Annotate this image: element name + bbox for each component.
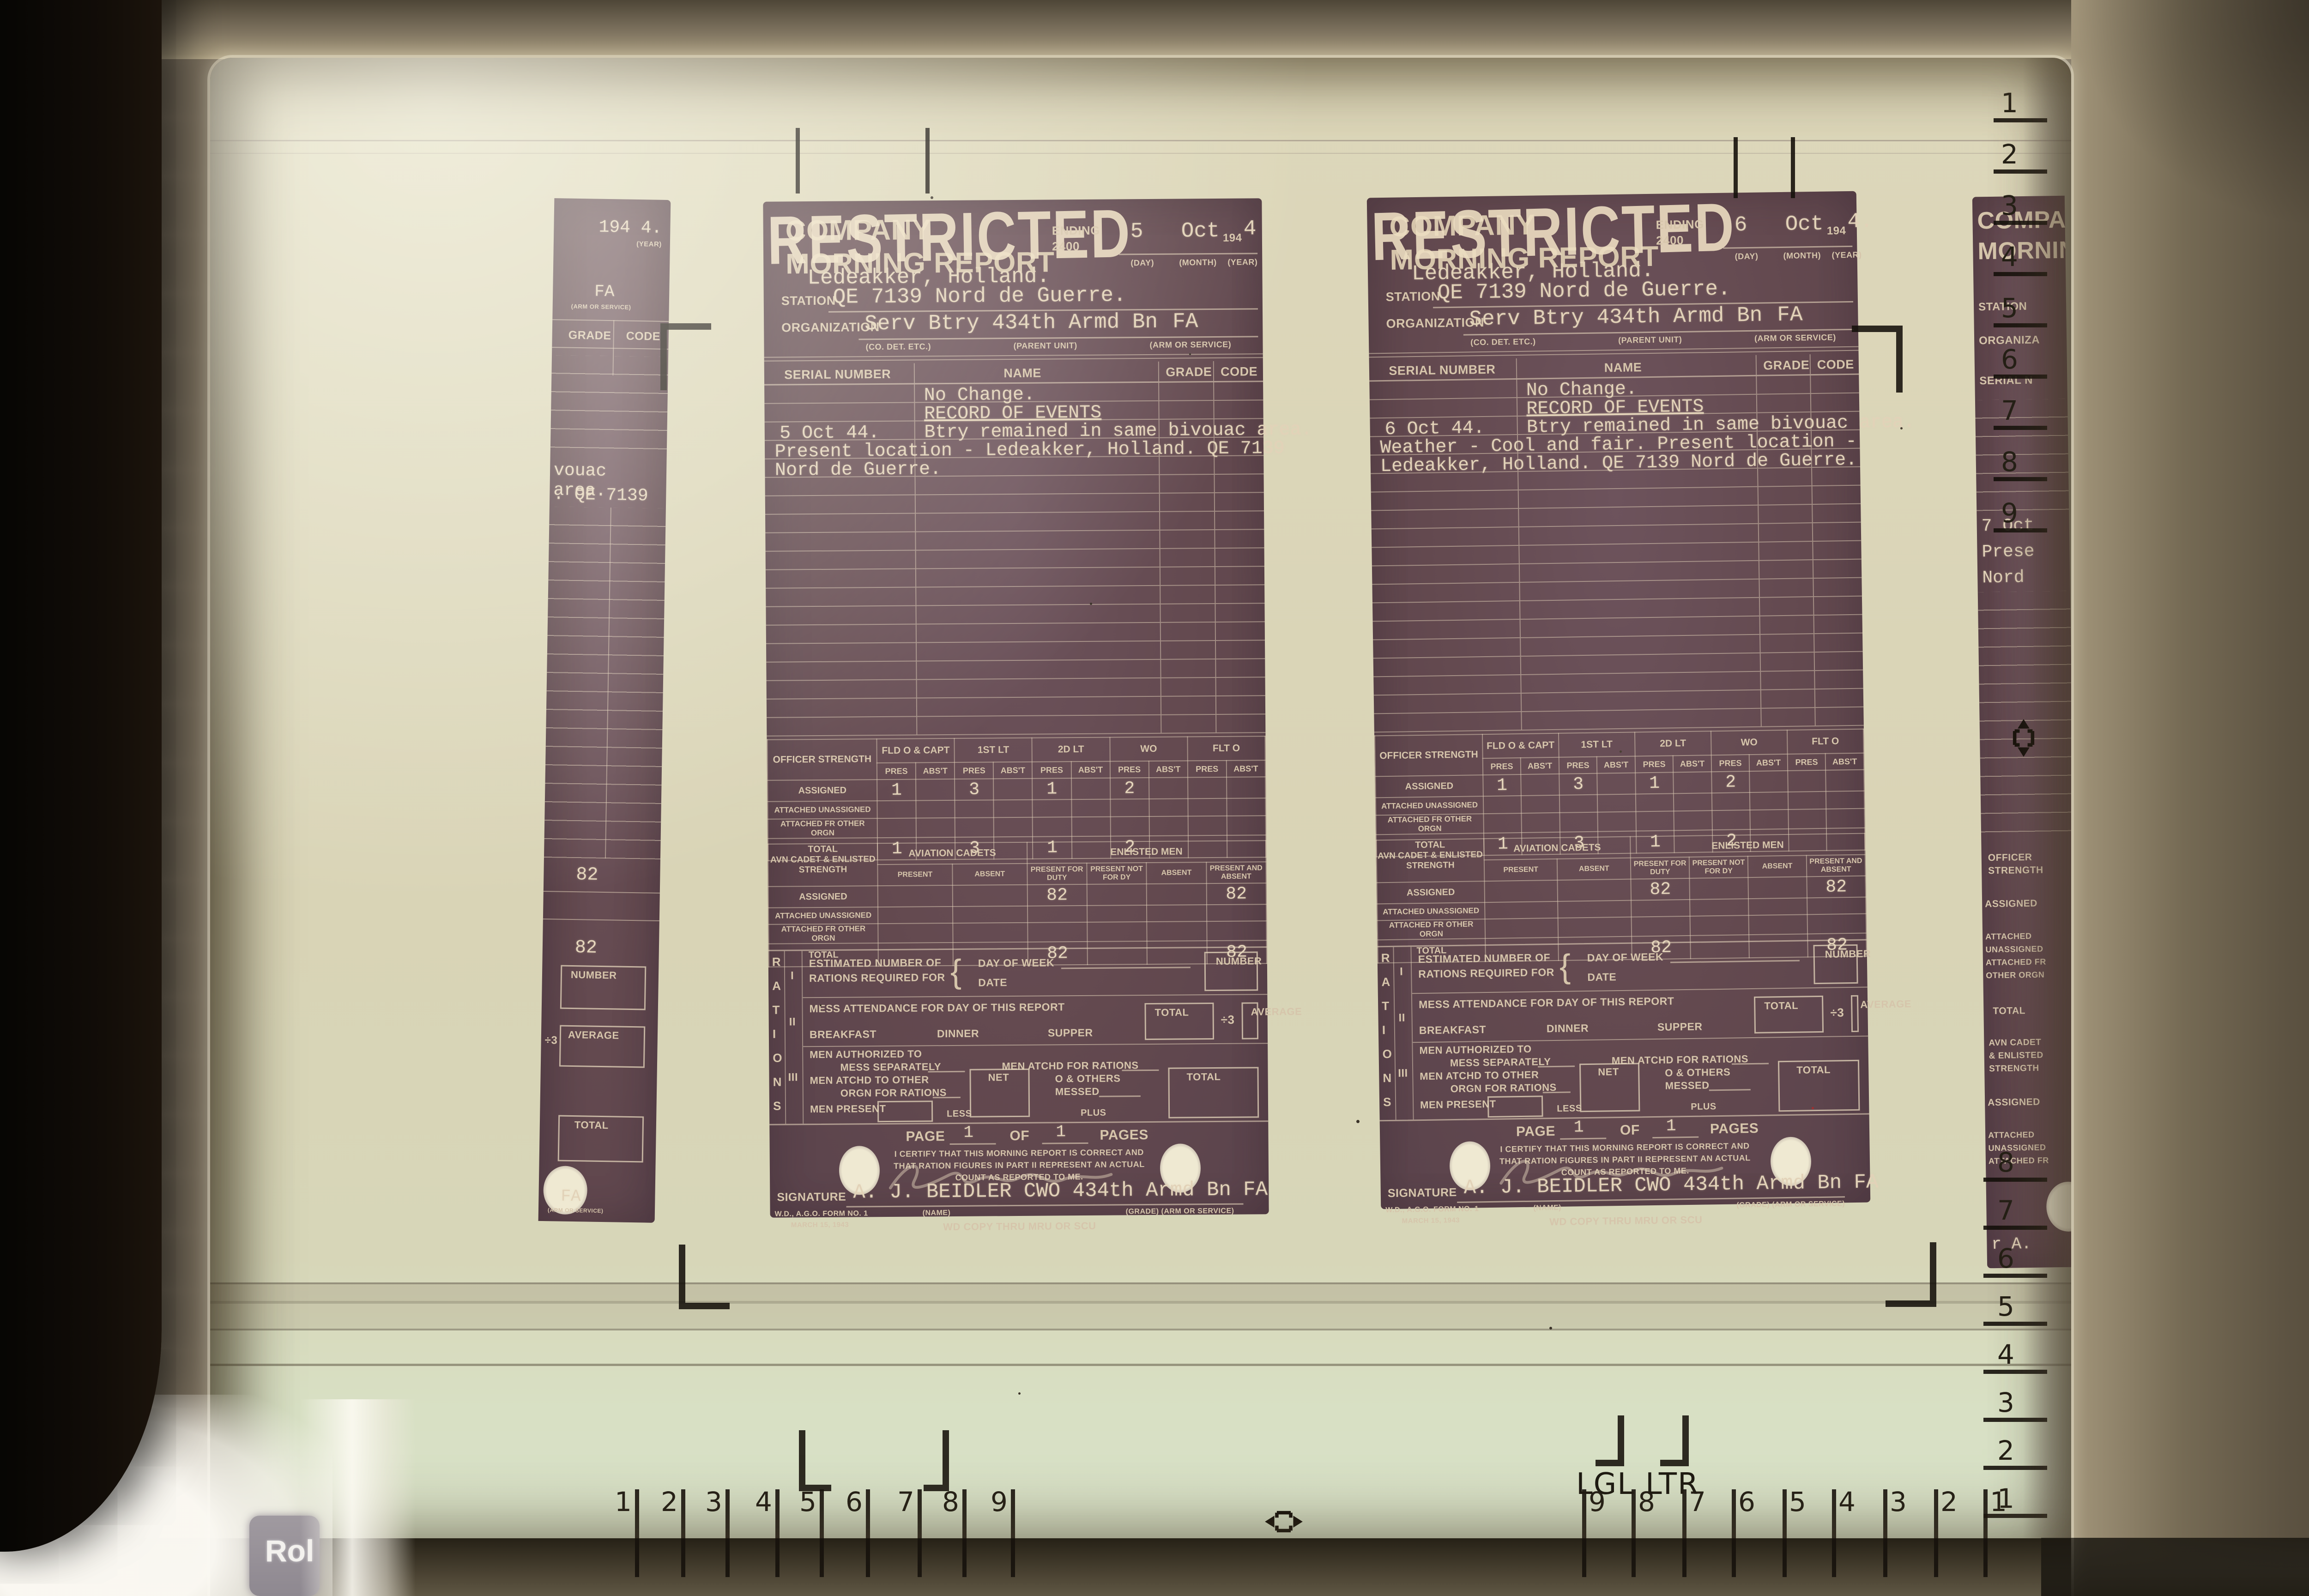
rations-rail-letter: A [772, 979, 781, 993]
mess-separately-line [928, 1071, 965, 1073]
year-sublabel: (YEAR) [1831, 250, 1862, 260]
officer-cell [1483, 813, 1522, 833]
right-ruler-number: 3 [2001, 192, 2018, 219]
row-sep [1215, 641, 1216, 659]
right-ruler-tick [1983, 1466, 2047, 1470]
row-sep [1521, 712, 1522, 730]
signature-label: SIGNATURE [777, 1191, 846, 1204]
day-of-week-label: DAY OF WEEK [978, 956, 1054, 969]
monitor-bezel-corner-shadow [2041, 1538, 2309, 1596]
row-sep [1759, 598, 1760, 616]
year-prefix: 194 [1223, 232, 1242, 245]
film-corner-top-right [1852, 326, 1903, 393]
row-sep [1159, 401, 1160, 419]
officer-row-label: ATTACHED UNASSIGNED [1376, 796, 1483, 815]
dinner-label: DINNER [1547, 1022, 1589, 1035]
officer-group: WO [1711, 730, 1788, 755]
dust-speck [931, 196, 933, 199]
right-ruler-tick [1994, 323, 2047, 327]
fragment-ruled-lines [1975, 399, 2069, 511]
officer-cell [1227, 777, 1265, 798]
fragment-attached-1: ATTACHED [1985, 931, 2032, 942]
o-and-others-label: O & OTHERS [1055, 1072, 1121, 1085]
bottom-ruler-tick [1732, 1489, 1736, 1577]
row-sep [1159, 475, 1160, 493]
pages-label: PAGES [1100, 1127, 1148, 1143]
right-ruler-number: 4 [1997, 1341, 2014, 1368]
rations-brace: { [950, 953, 962, 991]
enlisted-men-label: ENLISTED MEN [1630, 834, 1865, 858]
row-sep [1160, 531, 1161, 548]
enlisted-cell [1807, 914, 1867, 934]
row-sep [1811, 468, 1813, 485]
row-sep [1160, 641, 1161, 659]
col-serial-number: SERIAL NUMBER [784, 367, 891, 382]
row-sep [1161, 715, 1161, 733]
dust-speck [1812, 1107, 1814, 1109]
officer-group: 1ST LT [1559, 732, 1635, 757]
rations-brace: { [1559, 948, 1571, 985]
double-rule-1 [1369, 346, 1858, 354]
officer-cell [1188, 798, 1227, 816]
officer-cell [1636, 793, 1674, 811]
rations-rail-letter: A [1381, 975, 1390, 989]
row-sep [1215, 696, 1216, 714]
row-sep [1160, 605, 1161, 622]
officer-value: 1 [1649, 773, 1660, 793]
right-ruler-tick [1983, 1514, 2047, 1518]
arm-value: FA [1173, 309, 1198, 333]
record-rows: No Change.RECORD OF EVENTS5 Oct 44.Btry … [764, 382, 1265, 737]
row-sep [1760, 672, 1762, 689]
fragment-attached-5: ATTACHED [1988, 1130, 2035, 1140]
men-present-box [1487, 1095, 1543, 1118]
row-sep [1813, 634, 1815, 652]
mess-attendance-label: MESS ATTENDANCE FOR DAY OF THIS REPORT [1419, 995, 1674, 1011]
org-sublabel-1: (CO. DET. ETC.) [1470, 337, 1536, 347]
letter-size-label: LTR [1645, 1467, 1699, 1501]
col-grade: GRADE [1166, 365, 1212, 380]
fragment-number-label: NUMBER [571, 969, 617, 982]
col-name: NAME [1604, 360, 1642, 375]
row-sep [1160, 623, 1161, 641]
enlisted-cell: 82 [1027, 884, 1087, 906]
enlisted-cell [953, 885, 1028, 907]
dust-speck [1018, 1392, 1021, 1395]
mess-total-label: TOTAL [1764, 1000, 1798, 1012]
officer-cell: 1 [1635, 772, 1674, 794]
less-label: LESS [1557, 1103, 1582, 1114]
plus-label: PLUS [1691, 1101, 1717, 1112]
row-sep [915, 532, 916, 550]
officer-cell [1522, 813, 1560, 833]
film-bottom-edge [210, 1364, 2071, 1366]
enlisted-cell [1689, 877, 1748, 900]
enlisted-cell [1485, 901, 1558, 919]
aviation-cadets-label: AVIATION CADETS [877, 842, 1027, 864]
orgn-for-rations-line [933, 1097, 961, 1098]
rations-rail-letter: I [1382, 1023, 1386, 1037]
bottom-ruler-tick [681, 1489, 685, 1577]
right-ruler-number: 6 [2001, 346, 2018, 373]
officer-subcol: ABS'T [916, 762, 955, 780]
enlisted-subcol: PRESENT AND ABSENT [1206, 862, 1266, 883]
bottom-ruler-number: 4 [1838, 1488, 1856, 1515]
org-sublabel-1: (CO. DET. ETC.) [865, 342, 931, 352]
men-atchd-other-label: MEN ATCHD TO OTHER [810, 1074, 929, 1087]
officer-cell [1521, 774, 1559, 796]
col-grade: GRADE [1763, 358, 1809, 373]
right-ruler-number: 2 [1997, 1437, 2014, 1464]
messed-label: MESSED [1665, 1079, 1709, 1092]
enlisted-cell [1807, 897, 1866, 915]
month-sublabel: (MONTH) [1783, 251, 1821, 261]
fragment-year-sub: (YEAR) [636, 240, 662, 248]
officer-cell [1227, 816, 1266, 835]
right-ruler-number: 4 [2001, 243, 2018, 270]
right-ruler-number: 3 [1997, 1389, 2014, 1416]
o-and-others-label: O & OTHERS [1665, 1066, 1730, 1079]
enlisted-cell [1558, 901, 1632, 918]
fragment-divide: ÷3 [545, 1034, 558, 1047]
enlisted-cell [1558, 879, 1631, 901]
officer-cell: 1 [877, 780, 916, 801]
bottom-ruler-tick [1832, 1489, 1836, 1577]
enlisted-subcol: PRESENT FOR DUTY [1027, 863, 1087, 885]
film-frame-separator [210, 1282, 2071, 1333]
officer-cell [955, 800, 994, 818]
men-present-box [877, 1100, 933, 1122]
row-sep [916, 661, 917, 679]
page-value: 1 [1574, 1118, 1584, 1137]
enlisted-men-label: ENLISTED MEN [1027, 840, 1266, 864]
day-value: 6 [1734, 213, 1747, 237]
officer-row-label: ASSIGNED [768, 780, 877, 802]
ending-time: 2400 [1656, 233, 1684, 248]
right-ruler-tick [1983, 1370, 2047, 1374]
enlisted-cell [1748, 877, 1807, 899]
film-frame-bar [1734, 137, 1738, 198]
officer-cell [1598, 812, 1636, 832]
enlisted-cell [953, 906, 1028, 923]
officer-cell: 3 [955, 779, 993, 800]
supper-label: SUPPER [1048, 1027, 1093, 1040]
enlisted-cell: 82 [1206, 883, 1266, 905]
officer-cell [1750, 771, 1788, 792]
fragment-assigned-1: ASSIGNED [1985, 898, 2037, 910]
officer-cell [1674, 772, 1712, 793]
enlisted-cell [878, 907, 953, 924]
bottom-ruler-number: 7 [897, 1488, 914, 1515]
bottom-ruler-tick [866, 1489, 870, 1577]
orgn-for-rations-label: ORGN FOR RATIONS [1451, 1082, 1557, 1095]
row-sep [1214, 456, 1215, 474]
right-ruler-tick [1994, 528, 2047, 532]
enlisted-cell [953, 923, 1028, 943]
officer-cell [1110, 799, 1149, 817]
record-row [767, 714, 1265, 737]
station-label: STATION [1386, 289, 1440, 304]
film-corner-top-left [660, 323, 711, 390]
average-box [1851, 995, 1859, 1032]
day-sublabel: (DAY) [1130, 258, 1154, 268]
officer-subcol: ABS'T [1071, 762, 1110, 779]
officer-subcol: PRES [955, 762, 993, 779]
microfilm-screen: COMPANYMORNING REPORTRESTRICTEDENDING240… [210, 58, 2071, 1596]
enlisted-cell [1632, 916, 1691, 937]
officer-cell [994, 817, 1033, 837]
officer-cell [1826, 791, 1864, 809]
film-corner-bottom-left [679, 1245, 730, 1309]
officer-cell [1826, 809, 1865, 828]
col-name: NAME [1003, 366, 1041, 381]
officer-cell [955, 817, 994, 837]
fragment-rule [544, 891, 660, 894]
enlisted-cell [1631, 900, 1690, 917]
enlisted-value: 82 [1226, 884, 1247, 904]
row-sep [1215, 715, 1216, 732]
org-sublabel-2: (PARENT UNIT) [1618, 335, 1682, 345]
officer-value: 1 [1046, 779, 1057, 799]
officer-subcol: PRES [1559, 757, 1597, 774]
row-sep [1812, 486, 1813, 504]
ending-time: 2400 [1052, 239, 1080, 254]
microfilm-reader-photo: COMPANYMORNING REPORTRESTRICTEDENDING240… [0, 0, 2309, 1596]
bottom-ruler-tick [1883, 1489, 1887, 1577]
strip-mark-left [799, 1430, 831, 1491]
row-sep [1215, 678, 1216, 695]
dust-speck [1549, 1327, 1552, 1330]
officer-subcol: PRES [1635, 756, 1674, 773]
part-numeral-2: II [1398, 1012, 1405, 1025]
enlisted-cell [1147, 905, 1207, 922]
row-sep [1215, 623, 1216, 640]
row-sep [1214, 530, 1215, 548]
officer-cell: 1 [1033, 778, 1071, 800]
officer-cell [916, 818, 955, 838]
mess-separately-label: MESS SEPARATELY [840, 1061, 941, 1074]
enlisted-row-label: ASSIGNED [1377, 881, 1484, 904]
row-sep [1160, 568, 1161, 585]
row-sep [1215, 586, 1215, 603]
fragment-officer-2: STRENGTH [1988, 865, 2043, 877]
officer-subcol: PRES [877, 763, 916, 780]
grade-sublabel: (GRADE) (ARM OR SERVICE) [1126, 1207, 1234, 1216]
col-sep [914, 363, 915, 383]
fragment-attached-3: ATTACHED FR [1986, 957, 2046, 967]
bottom-ruler-tick [1582, 1489, 1586, 1577]
officer-strength-label: OFFICER STRENGTH [767, 739, 877, 780]
row-sep [1213, 401, 1214, 418]
film-corner-bottom-right [1886, 1242, 1936, 1307]
bottom-ruler-tick [1783, 1489, 1787, 1577]
org-sublabel-3: (ARM OR SERVICE) [1149, 340, 1231, 350]
row-sep [1215, 549, 1215, 566]
organization-underline [858, 336, 1258, 340]
rations-rail-letter: N [773, 1075, 782, 1089]
officer-row-label: ASSIGNED [1375, 775, 1483, 798]
rations-rail-letter: S [773, 1099, 781, 1113]
letter-size-bracket [1660, 1415, 1689, 1466]
officer-group: FLT O [1187, 736, 1265, 761]
officer-subcol: ABS'T [1749, 754, 1788, 771]
row-sep [1519, 583, 1520, 600]
year-digit: 4 [1244, 217, 1257, 241]
row-sep [1760, 653, 1761, 671]
bottom-ruler-number: 3 [1890, 1488, 1907, 1515]
officer-cell [1826, 770, 1864, 792]
fragment-stamp-2: MORNIN [1977, 236, 2071, 265]
officer-group: 2D LT [1032, 738, 1110, 762]
right-ruler-tick [1983, 1322, 2047, 1326]
page-line [1560, 1137, 1606, 1139]
row-sep [1761, 709, 1762, 726]
row-sep [1759, 543, 1760, 560]
signature-line [846, 1203, 1244, 1208]
officer-cell [1636, 811, 1674, 831]
enlisted-row-label: ATTACHED FR OTHER ORGN [1378, 919, 1485, 940]
right-ruler-number: 7 [2001, 397, 2018, 424]
fragment-grade: GRADE [568, 329, 611, 343]
date-underline [1723, 246, 1852, 249]
bottom-ruler-number: 8 [942, 1488, 959, 1515]
rations-rail-letter: S [1383, 1095, 1391, 1109]
officer-value: 3 [1573, 774, 1584, 794]
row-sep [1814, 653, 1815, 670]
row-sep [915, 606, 916, 623]
fragment-attached-4: OTHER ORGN [1986, 970, 2044, 980]
enlisted-cell [1147, 883, 1207, 905]
officer-cell [1788, 809, 1826, 829]
officer-subcol: ABS'T [1825, 753, 1864, 770]
row-sep [1518, 490, 1519, 508]
row-sep [1213, 382, 1214, 400]
dinner-label: DINNER [937, 1028, 979, 1040]
officer-cell [1188, 777, 1227, 799]
fragment-ruled-lines [1978, 591, 2071, 842]
dust-speck [820, 1004, 822, 1006]
row-sep [1517, 417, 1518, 434]
officer-group: FLD O & CAPT [877, 738, 955, 763]
bottom-ruler-number: 2 [1940, 1488, 1958, 1515]
bottom-center-alignment-mark [1264, 1509, 1304, 1535]
bottom-ruler-number: 5 [1789, 1488, 1806, 1515]
men-present-label: MEN PRESENT [1420, 1098, 1496, 1111]
fragment-text-2: . QE 7139 [553, 484, 648, 506]
row-sep [1813, 616, 1814, 633]
fragment-attached-2: UNASSIGNED [1985, 944, 2043, 955]
row-sep [915, 551, 916, 568]
year-prefix: 194 [1827, 224, 1846, 238]
rations-total-label: TOTAL [1796, 1064, 1831, 1076]
fragment-rule [552, 319, 669, 322]
officer-subcol: PRES [1482, 758, 1521, 775]
row-sep [1160, 660, 1161, 677]
bottom-ruler-number: 6 [1738, 1488, 1755, 1515]
enlisted-cell [878, 923, 953, 943]
officer-cell [877, 818, 916, 838]
right-ruler-tick [1983, 1418, 2047, 1422]
row-sep [1814, 708, 1816, 725]
rations-rail-letter: O [1382, 1047, 1392, 1061]
row-sep [914, 385, 915, 402]
monitor-bezel-right [2071, 0, 2309, 1596]
fragment-total-label: TOTAL [574, 1119, 609, 1131]
bottom-ruler-tick [918, 1489, 922, 1577]
row-sep [915, 588, 916, 605]
enlisted-subcol: PRESENT NOT FOR DY [1689, 856, 1748, 878]
bottom-ruler-number: 4 [755, 1488, 772, 1515]
officer-cell: 3 [1559, 774, 1597, 795]
date-underline [1119, 253, 1257, 255]
bottom-ruler-tick [1011, 1489, 1015, 1577]
rations-part-rail: IIIIII [785, 951, 804, 1124]
enlisted-subcol: PRESENT [878, 864, 953, 886]
rations-rail-letter: N [1383, 1071, 1392, 1085]
page-label: PAGE [906, 1129, 945, 1145]
officer-subcol: ABS'T [1597, 756, 1635, 774]
officer-subcol: ABS'T [1521, 757, 1559, 774]
row-sep [1760, 690, 1762, 708]
row-sep [1215, 567, 1215, 585]
row-sep [1812, 505, 1813, 522]
bottom-ruler-number: 1 [615, 1488, 632, 1515]
enlisted-subcol: ABSENT [1748, 855, 1807, 877]
right-ruler-number: 1 [1997, 1485, 2014, 1512]
of-label: OF [1620, 1122, 1640, 1138]
officer-cell [1674, 793, 1712, 811]
estimated-rations-label-1: ESTIMATED NUMBER OF [1418, 951, 1551, 966]
report-header: COMPANYMORNING REPORTRESTRICTEDENDING240… [763, 198, 1263, 368]
row-sep [1758, 487, 1759, 505]
enlisted-row-label: ASSIGNED [768, 886, 878, 908]
enlisted-cell: 82 [1631, 878, 1690, 901]
row-sep [1813, 597, 1814, 615]
rations-rail: RATIONS [1377, 947, 1396, 1120]
row-sep [1519, 601, 1521, 619]
bottom-ruler-number: 6 [846, 1488, 863, 1515]
plus-label: PLUS [1081, 1108, 1106, 1118]
row-sep [1518, 527, 1520, 545]
row-sep [1160, 586, 1161, 604]
row-sep [1517, 472, 1519, 490]
officer-value: 1 [891, 780, 902, 800]
film-frame-bar [796, 128, 800, 193]
officer-cell [1712, 792, 1750, 810]
officer-cell [1149, 816, 1188, 836]
enlisted-cell [1147, 921, 1207, 941]
row-sep [1518, 509, 1519, 526]
officer-cell [1750, 792, 1788, 810]
average-label: AVERAGE [1251, 1006, 1302, 1018]
officer-cell [993, 779, 1032, 800]
bottom-ruler-number: 3 [705, 1488, 722, 1515]
ending-label: ENDING [1052, 224, 1100, 238]
row-sep [1759, 635, 1761, 653]
officer-row-label: ATTACHED UNASSIGNED [768, 801, 877, 819]
bottom-ruler-tick [635, 1489, 639, 1577]
officer-value: 2 [1124, 779, 1135, 798]
orgn-for-rations-line [1543, 1092, 1571, 1094]
fragment-value-2: 82 [575, 937, 598, 959]
aviation-cadets-label: AVIATION CADETS [1484, 837, 1631, 860]
row-sep [1215, 659, 1216, 677]
men-atchd-rations-line [1122, 1070, 1159, 1071]
rations-content: ESTIMATED NUMBER OFRATIONS REQUIRED FOR{… [803, 948, 1269, 1124]
day-of-week-line [1061, 967, 1191, 969]
col-sep [1213, 361, 1214, 381]
officer-group: WO [1110, 737, 1188, 761]
